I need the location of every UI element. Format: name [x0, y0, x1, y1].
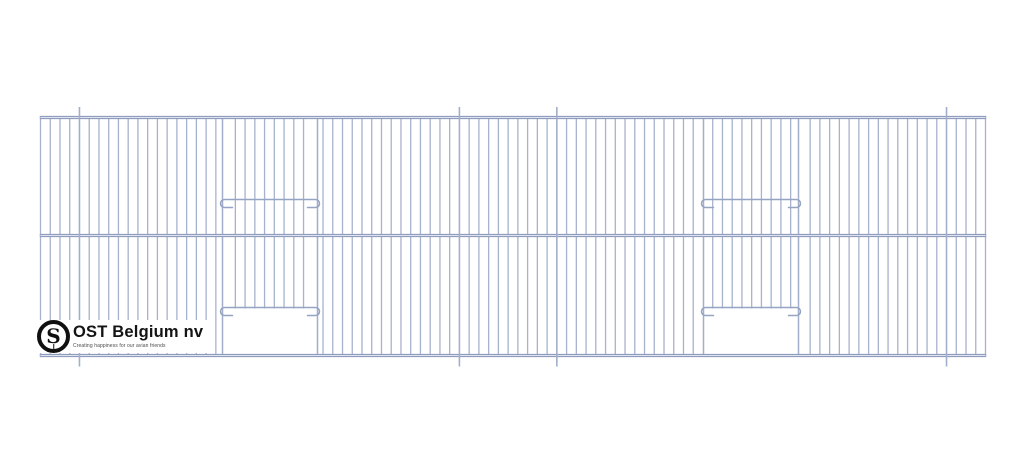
upper-hooked-wire [702, 200, 801, 208]
logo-text-block: OST Belgium nv Creating happiness for ou… [73, 324, 203, 349]
cage-front-panel-drawing [0, 0, 1024, 473]
company-logo: S OST Belgium nv Creating happiness for … [37, 320, 208, 353]
door-opening [704, 309, 797, 354]
monogram-letter: S [46, 326, 60, 346]
door-opening [223, 309, 316, 354]
company-tagline: Creating happiness for our avian friends [73, 343, 203, 349]
company-name: OST Belgium nv [73, 324, 203, 341]
ost-monogram-icon: S [37, 320, 70, 353]
monogram-stem [53, 344, 55, 351]
page: { "logo": { "company": "OST Belgium nv",… [0, 0, 1024, 473]
